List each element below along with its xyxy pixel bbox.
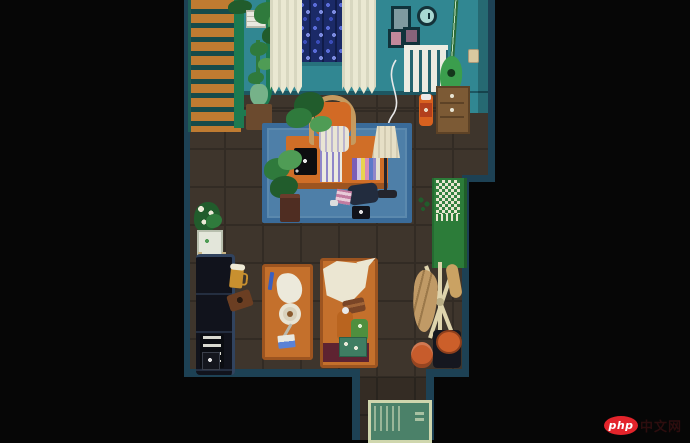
crate-knob [450,108,454,112]
welcome-mat[interactable] [368,400,432,443]
wall-clock[interactable] [417,6,437,26]
jar-cap [421,94,431,100]
floor-lamp-pole [384,158,387,192]
crate-knob [450,94,454,98]
mat-pattern-dashes [415,412,424,415]
coffee-table[interactable] [262,264,313,360]
php-logo-badge: php [604,416,638,435]
guitar-soundhole [447,69,456,78]
crate-line [440,102,464,104]
clock-hand [428,13,430,19]
plant-sprig [418,196,432,214]
guitar-neck [450,0,458,62]
mini-console[interactable] [202,352,220,370]
towel[interactable] [436,180,460,214]
mat-pattern [374,406,404,431]
picture-frame[interactable] [403,27,420,45]
small-item[interactable] [330,200,338,206]
doorway-wall-left [352,369,360,440]
napkin[interactable] [276,272,304,304]
cookie[interactable] [287,311,293,317]
jar-label [420,103,432,117]
php-logo-suffix: 中文网 [640,416,682,435]
towel-fringe [436,214,460,221]
rug-plant-pot[interactable] [280,194,300,222]
beer-mug[interactable] [229,267,244,288]
floor-lamp-base [377,190,397,198]
bench[interactable] [320,258,378,368]
curtain-left[interactable] [270,0,302,94]
sauce-jar[interactable] [419,94,433,126]
stool[interactable] [433,330,461,368]
camera[interactable] [352,206,370,219]
wall-border-right-top [488,0,495,181]
crate-line [440,116,464,118]
snack-box[interactable] [339,337,367,357]
light-switch[interactable] [468,49,479,63]
php-watermark: php 中文网 [604,414,682,436]
pouf[interactable] [411,342,433,368]
storage-crate[interactable] [436,86,470,134]
wardrobe[interactable] [432,178,467,268]
plant-vase[interactable] [250,84,268,106]
curtain-right[interactable] [342,0,376,94]
mug-foam [230,263,246,271]
picture-frame[interactable] [388,29,404,48]
game-screen: { "watermark": { "brand": "php", "suffix… [0,0,690,440]
book-row[interactable] [352,158,380,180]
window-wisteria [298,0,348,66]
stool-top [436,330,462,354]
plate[interactable] [279,303,301,325]
postcard[interactable] [277,334,295,349]
bottle-cap [342,307,349,314]
pen[interactable] [268,272,274,290]
